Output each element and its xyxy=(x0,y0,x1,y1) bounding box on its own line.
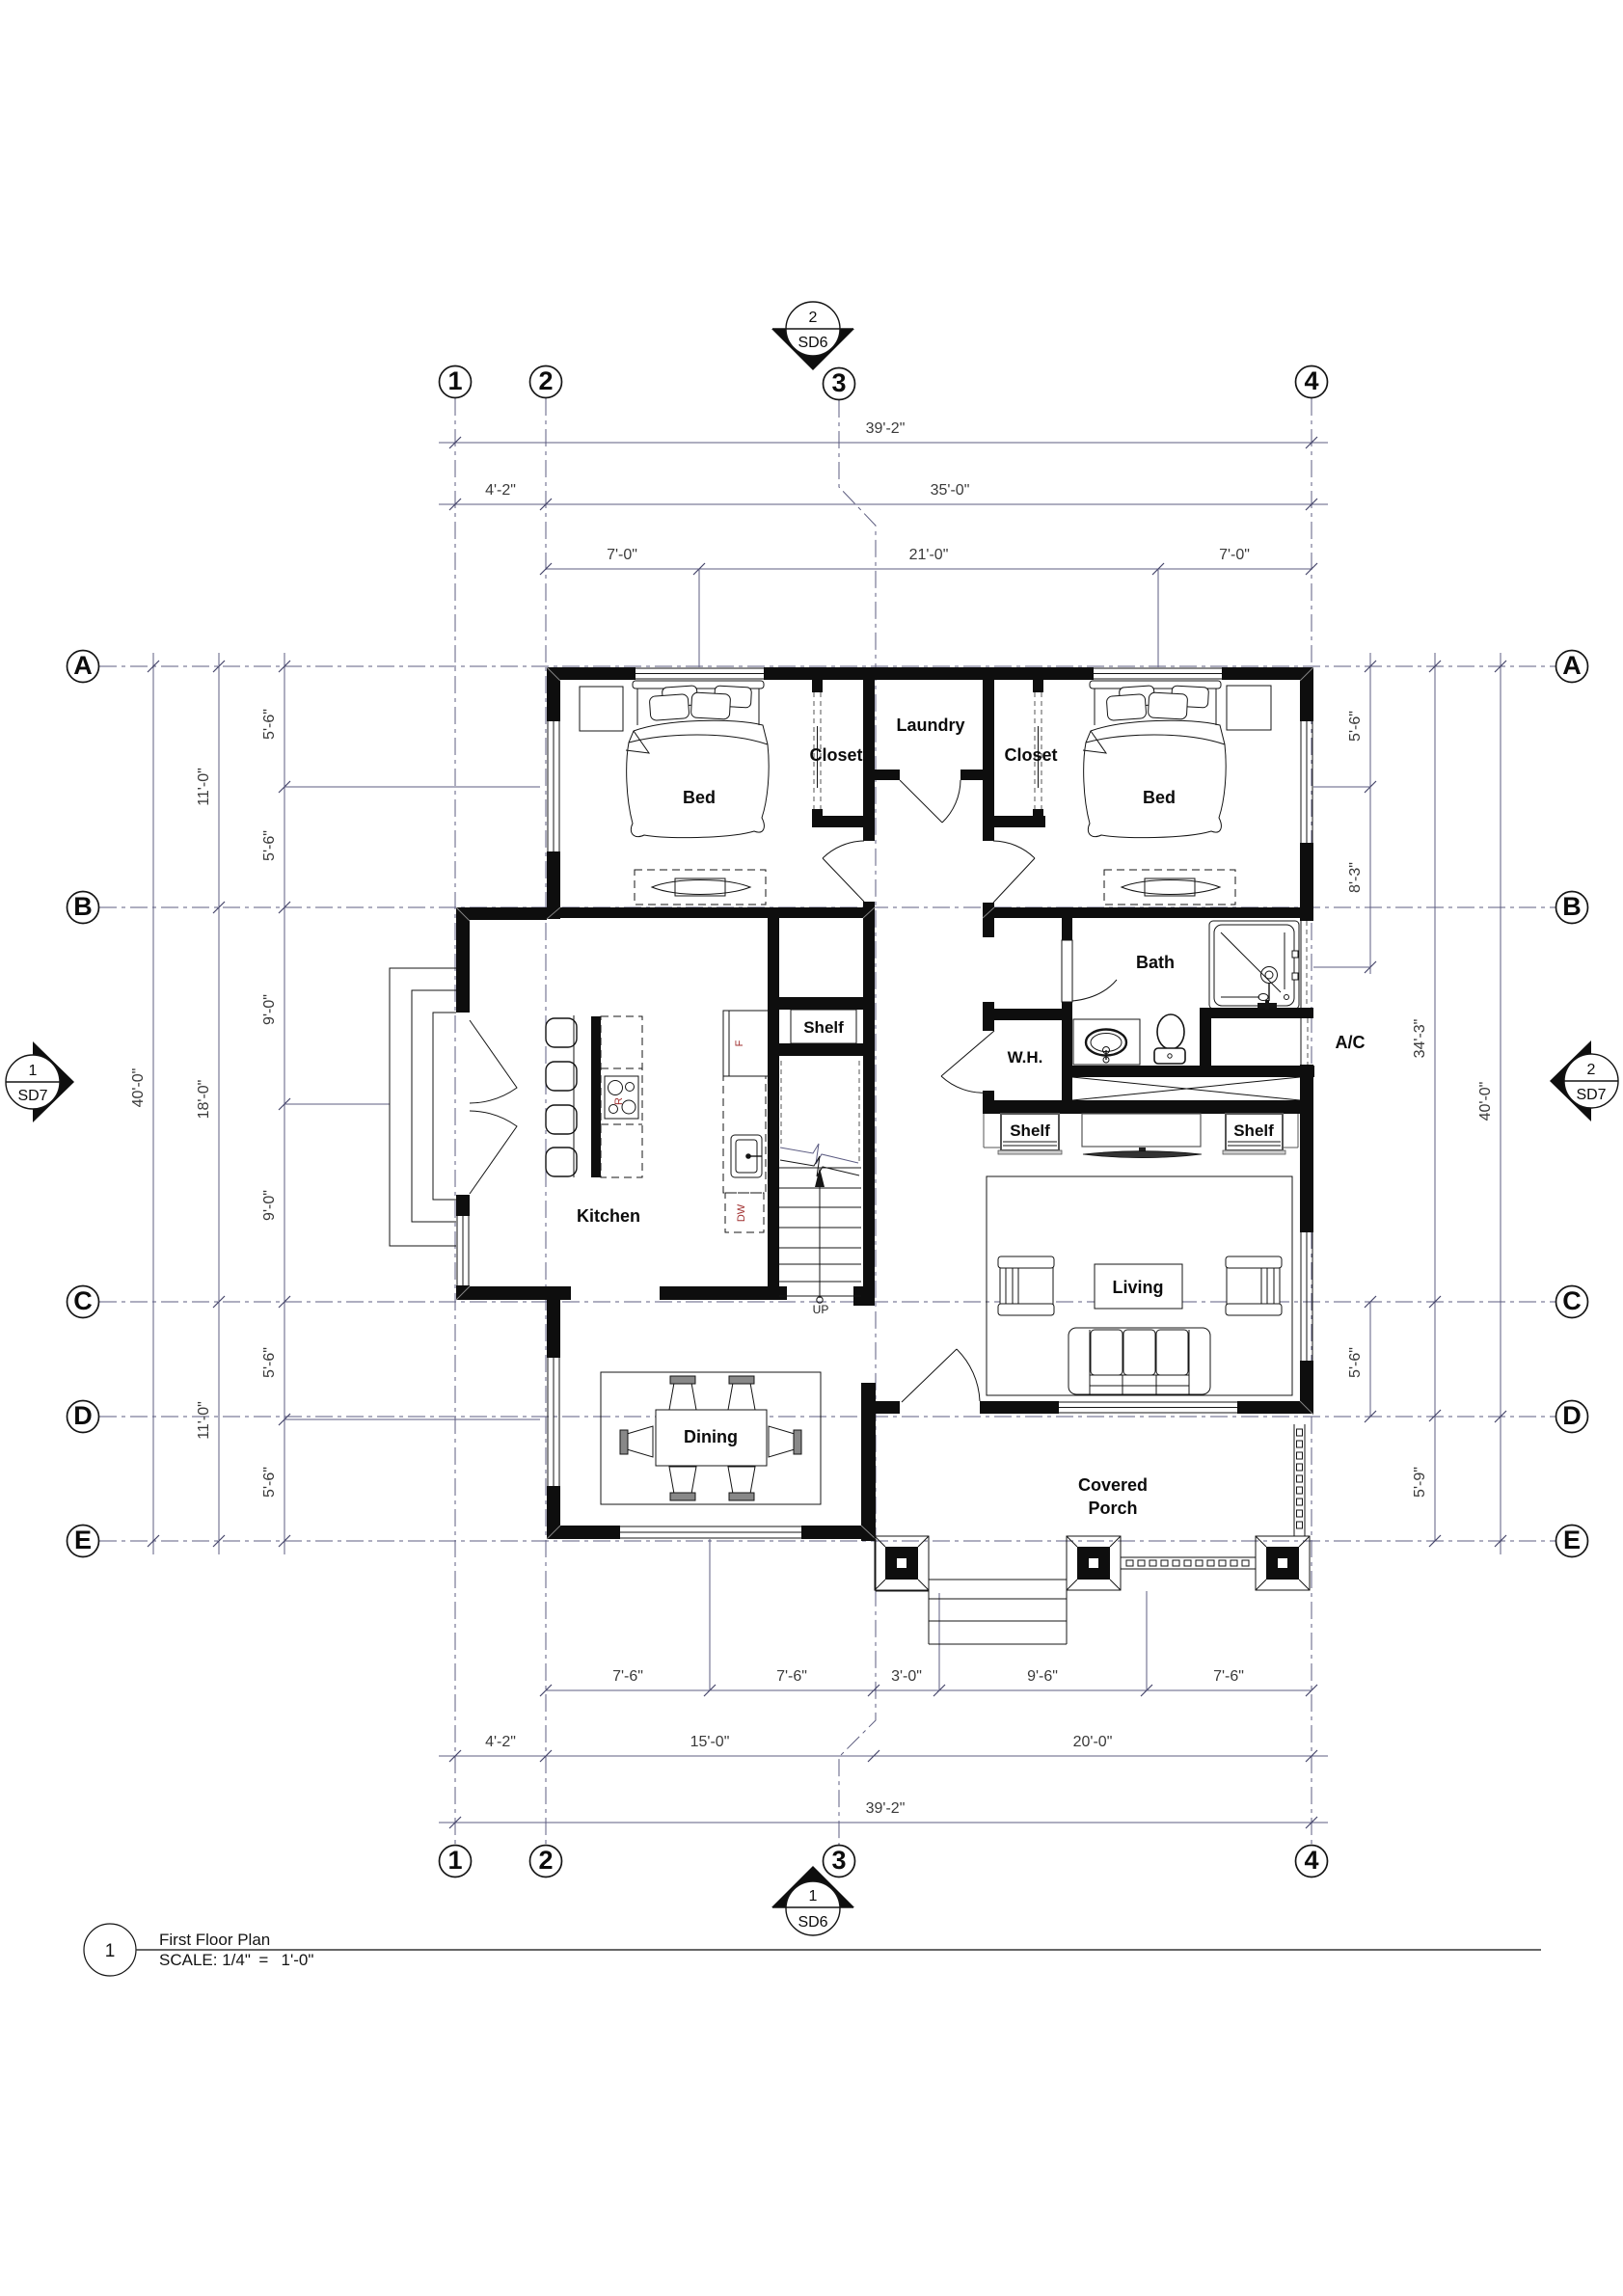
svg-text:D: D xyxy=(1562,1401,1582,1430)
svg-text:Living: Living xyxy=(1113,1278,1164,1297)
svg-text:5'-6": 5'-6" xyxy=(1347,711,1364,742)
svg-text:15'-0": 15'-0" xyxy=(690,1734,730,1750)
svg-text:2: 2 xyxy=(1587,1062,1596,1078)
svg-text:SD6: SD6 xyxy=(798,335,827,351)
svg-text:4'-2": 4'-2" xyxy=(485,482,516,499)
svg-text:7'-6": 7'-6" xyxy=(776,1668,807,1685)
svg-text:11'-0": 11'-0" xyxy=(196,768,212,806)
svg-text:9'-0": 9'-0" xyxy=(261,1190,278,1221)
svg-text:5'-9": 5'-9" xyxy=(1412,1467,1428,1498)
svg-text:C: C xyxy=(73,1286,93,1315)
svg-text:Covered: Covered xyxy=(1078,1475,1148,1495)
svg-text:SD7: SD7 xyxy=(1576,1087,1606,1103)
svg-text:5'-6": 5'-6" xyxy=(261,1467,278,1498)
svg-text:Closet: Closet xyxy=(1004,745,1057,765)
svg-text:W.H.: W.H. xyxy=(1008,1048,1043,1067)
svg-text:2: 2 xyxy=(538,1846,553,1875)
svg-text:35'-0": 35'-0" xyxy=(931,482,970,499)
svg-text:F: F xyxy=(734,1040,745,1046)
svg-text:2: 2 xyxy=(809,310,818,326)
svg-text:Kitchen: Kitchen xyxy=(577,1206,640,1226)
svg-text:1: 1 xyxy=(105,1941,116,1961)
svg-text:A: A xyxy=(73,651,93,680)
svg-text:4'-2": 4'-2" xyxy=(485,1734,516,1750)
svg-text:39'-2": 39'-2" xyxy=(866,1800,906,1817)
svg-text:18'-0": 18'-0" xyxy=(196,1080,212,1120)
svg-text:UP: UP xyxy=(813,1303,829,1316)
svg-text:Laundry: Laundry xyxy=(896,716,964,735)
svg-text:7'-6": 7'-6" xyxy=(1213,1668,1244,1685)
svg-text:First Floor Plan: First Floor Plan xyxy=(159,1931,270,1949)
svg-text:5'-6": 5'-6" xyxy=(261,709,278,740)
svg-text:5'-6": 5'-6" xyxy=(1347,1347,1364,1378)
svg-text:11'-0": 11'-0" xyxy=(196,1401,212,1440)
svg-text:20'-0": 20'-0" xyxy=(1073,1734,1113,1750)
svg-text:9'-0": 9'-0" xyxy=(261,994,278,1025)
svg-text:3'-0": 3'-0" xyxy=(891,1668,922,1685)
svg-text:8'-3": 8'-3" xyxy=(1347,862,1364,893)
svg-text:Shelf: Shelf xyxy=(1233,1121,1274,1140)
svg-text:1: 1 xyxy=(447,366,462,395)
svg-text:SD6: SD6 xyxy=(798,1914,827,1931)
svg-text:SD7: SD7 xyxy=(17,1088,47,1104)
svg-text:7'-0": 7'-0" xyxy=(607,547,637,563)
svg-text:34'-3": 34'-3" xyxy=(1412,1019,1428,1059)
svg-text:DW: DW xyxy=(736,1203,747,1222)
svg-text:A: A xyxy=(1562,651,1582,680)
svg-text:5'-6": 5'-6" xyxy=(261,830,278,861)
svg-text:7'-0": 7'-0" xyxy=(1219,547,1250,563)
svg-text:1: 1 xyxy=(447,1846,462,1875)
svg-text:E: E xyxy=(74,1526,92,1554)
svg-text:7'-6": 7'-6" xyxy=(612,1668,643,1685)
svg-text:B: B xyxy=(73,892,93,921)
svg-text:3: 3 xyxy=(831,368,846,397)
svg-text:Bed: Bed xyxy=(683,788,716,807)
svg-text:B: B xyxy=(1562,892,1582,921)
svg-text:Bath: Bath xyxy=(1136,953,1175,972)
svg-text:D: D xyxy=(73,1401,93,1430)
svg-text:5'-6": 5'-6" xyxy=(261,1347,278,1378)
svg-text:Bed: Bed xyxy=(1143,788,1176,807)
svg-text:1: 1 xyxy=(29,1063,38,1079)
svg-text:4: 4 xyxy=(1304,366,1318,395)
svg-text:R: R xyxy=(613,1097,625,1105)
svg-text:SCALE: 1/4" = 1'-0": SCALE: 1/4" = 1'-0" xyxy=(159,1951,313,1969)
svg-text:Closet: Closet xyxy=(809,745,862,765)
svg-text:E: E xyxy=(1563,1526,1581,1554)
svg-text:A/C: A/C xyxy=(1336,1033,1366,1052)
svg-text:21'-0": 21'-0" xyxy=(909,547,949,563)
svg-text:Shelf: Shelf xyxy=(1010,1121,1050,1140)
svg-text:39'-2": 39'-2" xyxy=(866,420,906,437)
svg-text:1: 1 xyxy=(809,1888,818,1904)
svg-text:4: 4 xyxy=(1304,1846,1318,1875)
svg-text:40'-0": 40'-0" xyxy=(130,1068,147,1108)
svg-text:40'-0": 40'-0" xyxy=(1477,1082,1494,1121)
svg-text:2: 2 xyxy=(538,366,553,395)
svg-text:3: 3 xyxy=(831,1846,846,1875)
svg-text:9'-6": 9'-6" xyxy=(1027,1668,1058,1685)
svg-text:Dining: Dining xyxy=(684,1427,738,1446)
svg-text:Shelf: Shelf xyxy=(803,1018,844,1037)
svg-text:C: C xyxy=(1562,1286,1582,1315)
svg-text:Porch: Porch xyxy=(1088,1499,1137,1518)
